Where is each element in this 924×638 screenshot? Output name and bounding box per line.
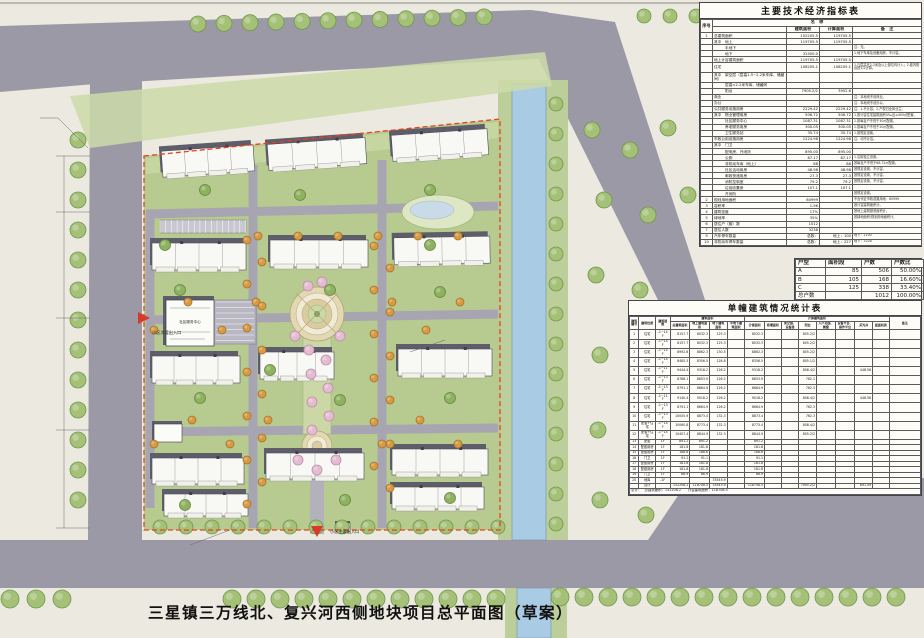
- tree-icon: [465, 520, 479, 534]
- tree-icon: [592, 347, 608, 363]
- header-cell: 面积段: [826, 260, 862, 268]
- table-cell: 住宅: [639, 376, 656, 385]
- balcony: [270, 476, 290, 481]
- tree-icon: [549, 157, 563, 171]
- residential-slab: [396, 344, 492, 378]
- tree-icon: [370, 242, 378, 250]
- table-cell: [855, 412, 873, 421]
- tree-icon: [370, 418, 378, 426]
- tree-icon: [200, 185, 211, 196]
- table-cell: 126.2: [709, 366, 727, 375]
- tree-icon: [695, 588, 713, 606]
- table-cell: 125.3: [709, 330, 727, 339]
- table-cell: -1~11F: [655, 366, 670, 375]
- table-cell: 805.2/2: [799, 430, 817, 439]
- balcony: [297, 264, 317, 269]
- tree-icon: [388, 298, 396, 306]
- tree-icon: [153, 520, 167, 534]
- table-row: 其中 架空层（层高1.5~2.2米车库、储藏间）: [701, 72, 922, 82]
- tree-icon: [231, 520, 245, 534]
- tree-icon: [445, 393, 456, 404]
- table-cell: [889, 421, 920, 430]
- table-cell: 8653.9: [690, 376, 710, 385]
- table-cell: [765, 394, 782, 403]
- tree-icon: [160, 240, 171, 251]
- table-row: 5住宅-1~11F9444.49318.2126.29318.2808.4/24…: [630, 366, 921, 375]
- tree-icon: [265, 365, 276, 376]
- table-cell: 805.2/2: [799, 339, 817, 348]
- table-cell: 9018.2: [690, 394, 710, 403]
- table-cell: [765, 366, 782, 375]
- table-cell: A: [796, 268, 826, 276]
- table-cell: 10005.9: [670, 412, 690, 421]
- tree-icon: [454, 232, 462, 240]
- tree-icon: [660, 120, 676, 136]
- table-cell: [781, 348, 799, 357]
- table-cell: 8786.1: [670, 376, 690, 385]
- tree-icon: [53, 590, 71, 608]
- tree-icon: [414, 232, 422, 240]
- table-cell: 8485.3: [670, 357, 690, 366]
- table-row: 9住宅-1~13F8791.18664.9126.28664.9762.3: [630, 403, 921, 412]
- tree-icon: [549, 337, 563, 351]
- balcony: [230, 168, 248, 174]
- tree-icon: [205, 520, 219, 534]
- table-row: 10非机动车停车数量总数：地上：227地下：3228: [701, 239, 922, 245]
- table-cell: 1012: [862, 292, 892, 300]
- tree-icon: [335, 331, 345, 341]
- tree-icon: [243, 280, 251, 288]
- building-table-footer: 总计： 总建筑面积：152208.2 计容建筑面积：118708.5: [630, 489, 921, 495]
- balcony: [273, 166, 293, 172]
- table-cell: 6: [630, 376, 639, 385]
- tree-icon: [268, 14, 284, 30]
- tree-icon: [294, 13, 310, 29]
- tree-icon: [549, 367, 563, 381]
- tree-icon: [258, 434, 266, 442]
- table-cell: [889, 385, 920, 394]
- tree-icon: [386, 308, 394, 316]
- tree-icon: [184, 298, 192, 306]
- tree-icon: [216, 15, 232, 31]
- tree-icon: [179, 520, 193, 534]
- table-cell: B: [796, 276, 826, 284]
- tree-icon: [671, 588, 689, 606]
- table-cell: [701, 63, 713, 72]
- building-table: 建筑编号 建筑性质 建筑层数 建筑面积 计算建筑面积 备注 总建筑面积 地上建筑…: [629, 316, 921, 495]
- table-cell: 住宅: [639, 366, 656, 375]
- table-cell: [816, 412, 835, 421]
- table-cell: [820, 72, 853, 82]
- balcony: [398, 261, 417, 266]
- table-cell: [727, 394, 745, 403]
- balcony: [177, 481, 195, 486]
- tree-icon: [317, 277, 327, 287]
- balcony: [225, 513, 241, 518]
- table-cell: 762.3: [799, 403, 817, 412]
- header-cell: 采光井: [855, 322, 873, 330]
- residential-slab: [390, 444, 488, 477]
- tree-icon: [70, 312, 86, 328]
- balcony: [459, 506, 477, 511]
- tree-icon: [70, 162, 86, 178]
- tree-icon: [549, 217, 563, 231]
- balcony: [441, 154, 460, 160]
- tree-icon: [257, 520, 271, 534]
- tree-icon: [175, 285, 186, 296]
- tree-icon: [304, 345, 314, 355]
- residential-slab: [150, 453, 244, 486]
- tree-icon: [424, 10, 440, 26]
- tree-icon: [323, 383, 333, 393]
- table-cell: 8873.4: [745, 412, 765, 421]
- balcony: [176, 380, 193, 385]
- tree-icon: [863, 588, 881, 606]
- table-cell: [727, 403, 745, 412]
- table-cell: [855, 421, 873, 430]
- table-row: B10516816.60%: [796, 276, 924, 284]
- tree-icon: [370, 286, 378, 294]
- tree-icon: [374, 232, 382, 240]
- table-cell: [873, 366, 890, 375]
- tree-icon: [549, 247, 563, 261]
- table-cell: 8664.9: [745, 403, 765, 412]
- table-cell: 762.3: [799, 385, 817, 394]
- tree-icon: [680, 187, 696, 203]
- table-cell: 地下：3228: [853, 239, 922, 245]
- table-cell: 33.40%: [892, 284, 924, 292]
- tree-icon: [719, 588, 737, 606]
- table-cell: -1~14F: [655, 339, 670, 348]
- balcony: [318, 163, 338, 169]
- community-center-label: 社区服务中心: [179, 319, 201, 324]
- table-cell: -1~13F: [655, 385, 670, 394]
- header-cell: 总建筑面积: [670, 322, 690, 330]
- tree-icon: [422, 326, 430, 334]
- table-cell: [727, 348, 745, 357]
- header-cell: 名 称: [713, 20, 922, 27]
- table-cell: 8: [630, 394, 639, 403]
- tree-icon: [226, 440, 234, 448]
- table-cell: -1~13F: [655, 403, 670, 412]
- table-cell: 9140.4: [670, 394, 690, 403]
- table-cell: [816, 376, 835, 385]
- tree-icon: [307, 397, 317, 407]
- tree-icon: [398, 11, 414, 27]
- table-cell: 8992.8: [670, 348, 690, 357]
- table-cell: [727, 376, 745, 385]
- residential-slab: [264, 448, 364, 481]
- tree-icon: [70, 282, 86, 298]
- balcony: [467, 373, 486, 378]
- tree-icon: [258, 258, 266, 266]
- residential-slab: [150, 351, 240, 385]
- table-cell: 8844.9: [690, 430, 710, 439]
- balcony: [168, 513, 184, 518]
- table-cell: 5: [630, 366, 639, 375]
- table-cell: [835, 394, 855, 403]
- table-cell: -1~14F: [655, 357, 670, 366]
- table-cell: 8032.3: [690, 339, 710, 348]
- balcony: [209, 170, 227, 176]
- tree-icon: [340, 495, 351, 506]
- table-cell: [873, 430, 890, 439]
- table-cell: [835, 385, 855, 394]
- table-cell: [765, 330, 782, 339]
- header-cell: 屋面机房: [873, 322, 890, 330]
- tree-icon: [491, 520, 505, 534]
- table-cell: [781, 376, 799, 385]
- table-cell: 762.1: [799, 376, 817, 385]
- table-cell: [816, 348, 835, 357]
- table-cell: [826, 292, 862, 300]
- table-cell: 8032.3: [745, 330, 765, 339]
- balcony: [216, 380, 233, 385]
- table-row: 10住宅-1~13F10005.98873.4132.38873.4762.3: [630, 412, 921, 421]
- balcony: [156, 481, 174, 486]
- table-cell: [727, 330, 745, 339]
- table-cell: -1~14F: [655, 421, 670, 430]
- site-plan-drawing: 社区服务中心: [0, 0, 924, 638]
- table-cell: [727, 339, 745, 348]
- table-cell: [889, 330, 920, 339]
- table-cell: [889, 366, 920, 375]
- table-cell: 338: [862, 284, 892, 292]
- table-cell: 8791.1: [670, 385, 690, 394]
- header-cell: 建筑层数: [655, 317, 670, 330]
- table-cell: 住宅: [639, 394, 656, 403]
- tree-icon: [307, 425, 317, 435]
- tree-icon: [303, 281, 313, 291]
- table-cell: [855, 430, 873, 439]
- table-cell: [816, 430, 835, 439]
- tech-table: 序号 名 称 建筑面积 计算面积 备 注 1总建筑面积152205.511970…: [700, 19, 922, 246]
- tree-icon: [378, 440, 386, 448]
- tree-icon: [663, 9, 677, 23]
- header-cell: 架空层、设备层: [781, 322, 799, 330]
- table-cell: 448.56: [855, 366, 873, 375]
- tree-icon: [264, 416, 272, 424]
- tree-icon: [243, 368, 251, 376]
- tree-icon: [549, 427, 563, 441]
- tree-icon: [439, 520, 453, 534]
- tree-icon: [346, 12, 362, 28]
- table-cell: 8862.3: [690, 348, 710, 357]
- table-row: 11配套+住宅-1~14F10060.88773.4132.38773.4808…: [630, 421, 921, 430]
- table-cell: 11: [630, 421, 639, 430]
- table-cell: [889, 348, 920, 357]
- header-cell: 阳台: [799, 322, 817, 330]
- table-cell: [835, 421, 855, 430]
- table-cell: 132.3: [709, 412, 727, 421]
- tree-icon: [70, 132, 86, 148]
- table-cell: 8157.7: [670, 330, 690, 339]
- table-cell: 住宅: [713, 63, 787, 72]
- header-cell: 计容面积: [745, 322, 765, 330]
- tree-icon: [70, 342, 86, 358]
- balcony: [397, 157, 416, 163]
- footer-cell: 总计： 总建筑面积：152208.2 计容建筑面积：118708.5: [630, 489, 921, 495]
- tree-icon: [243, 236, 251, 244]
- tech-table-body: 1总建筑面积152205.5119705.5其中 地上119705.511970…: [701, 33, 922, 245]
- header-cell: 地上建筑面积: [690, 322, 710, 330]
- main-entrance-label: 小区主要出入口: [330, 528, 359, 535]
- table-cell: [816, 421, 835, 430]
- table-cell: [765, 412, 782, 421]
- tree-icon: [599, 588, 617, 606]
- table-cell: [781, 430, 799, 439]
- tree-icon: [637, 9, 651, 23]
- table-cell: [853, 72, 922, 82]
- tree-icon: [258, 302, 266, 310]
- balcony: [199, 267, 218, 272]
- table-cell: 808.4/2: [799, 421, 817, 430]
- balcony: [440, 472, 459, 477]
- table-cell: 105: [826, 276, 862, 284]
- balcony: [424, 373, 443, 378]
- tree-icon: [370, 330, 378, 338]
- tree-icon: [632, 282, 648, 298]
- tree-icon: [70, 462, 86, 478]
- tree-icon: [588, 267, 604, 283]
- table-cell: 8157.7: [670, 339, 690, 348]
- table-cell: [835, 330, 855, 339]
- table-cell: 4: [630, 357, 639, 366]
- table-row: 4住宅-1~14F8485.38356.5128.88356.5805.1/2: [630, 357, 921, 366]
- table-cell: 8773.4: [690, 421, 710, 430]
- table-cell: [765, 376, 782, 385]
- table-cell: [727, 366, 745, 375]
- tree-icon: [549, 97, 563, 111]
- balcony: [219, 481, 237, 486]
- tree-icon: [549, 187, 563, 201]
- table-cell: [889, 376, 920, 385]
- table-cell: 1.凡层高在2.2米及以上部位均计入；2.套内阳台按1/2计算。: [853, 63, 922, 72]
- table-cell: [816, 357, 835, 366]
- table-cell: 住宅: [639, 339, 656, 348]
- tree-icon: [584, 122, 600, 138]
- table-cell: 配套+住宅: [639, 430, 656, 439]
- tree-icon: [218, 326, 226, 334]
- tree-icon: [425, 185, 436, 196]
- header-cell: 备 注: [853, 26, 922, 33]
- tree-icon: [180, 500, 191, 511]
- pond: [402, 195, 474, 229]
- table-cell: [889, 394, 920, 403]
- header-cell: 半地下建筑面积: [727, 322, 745, 330]
- table-row: C12533833.40%: [796, 284, 924, 292]
- tree-icon: [331, 455, 341, 465]
- tree-icon: [254, 232, 262, 240]
- table-cell: [855, 376, 873, 385]
- table-cell: 总数：: [787, 239, 820, 245]
- table-cell: 2: [630, 339, 639, 348]
- table-row: 6住宅-1~13F8786.18653.9126.28653.9762.1: [630, 376, 921, 385]
- table-cell: 125: [826, 284, 862, 292]
- balcony: [156, 267, 175, 272]
- table-cell: 1: [630, 330, 639, 339]
- tree-icon: [743, 588, 761, 606]
- table-cell: 住宅: [639, 348, 656, 357]
- table-cell: 7: [630, 385, 639, 394]
- balcony: [274, 264, 294, 269]
- balcony: [396, 506, 414, 511]
- tree-icon: [549, 307, 563, 321]
- table-cell: [781, 385, 799, 394]
- table-cell: 9318.2: [745, 366, 765, 375]
- balcony: [206, 513, 222, 518]
- tree-icon: [325, 285, 336, 296]
- table-cell: 108205.1: [787, 63, 820, 72]
- tree-icon: [450, 10, 466, 26]
- balcony: [319, 264, 339, 269]
- table-cell: [873, 330, 890, 339]
- table-cell: 非机动车停车数量: [713, 239, 787, 245]
- header-cell: 建筑性质: [639, 317, 656, 330]
- table-cell: 125.3: [709, 339, 727, 348]
- table-cell: [781, 421, 799, 430]
- table-cell: 8862.3: [745, 348, 765, 357]
- tree-icon: [638, 507, 654, 523]
- tree-icon: [549, 457, 563, 471]
- balcony: [464, 260, 483, 265]
- table-cell: -1~11F: [655, 394, 670, 403]
- table-cell: [889, 412, 920, 421]
- table-cell: 130.5: [709, 348, 727, 357]
- tree-icon: [887, 588, 905, 606]
- residential-slab: [392, 231, 491, 267]
- header-cell: 设备平台、操作平台: [835, 322, 855, 330]
- table-cell: [781, 339, 799, 348]
- table-cell: [835, 376, 855, 385]
- table-cell: -1~14F: [655, 330, 670, 339]
- tree-icon: [596, 192, 612, 208]
- tech-table-header: 序号 名 称 建筑面积 计算面积 备 注: [701, 20, 922, 33]
- building-table-title: 单幢建筑情况统计表: [629, 301, 921, 316]
- table-cell: [765, 430, 782, 439]
- tree-icon: [1, 590, 19, 608]
- table-cell: -1~14F: [655, 430, 670, 439]
- table-cell: 506: [862, 268, 892, 276]
- tree-icon: [815, 588, 833, 606]
- tree-icon: [435, 287, 446, 298]
- table-cell: [873, 421, 890, 430]
- tree-icon: [70, 402, 86, 418]
- table-cell: [873, 339, 890, 348]
- table-cell: [727, 430, 745, 439]
- tree-icon: [312, 465, 322, 475]
- table-cell: 8032.3: [690, 330, 710, 339]
- tree-icon: [321, 355, 331, 365]
- table-cell: [816, 403, 835, 412]
- table-cell: 8032.3: [745, 339, 765, 348]
- table-cell: 9318.2: [690, 366, 710, 375]
- table-cell: 总户数: [796, 292, 826, 300]
- residential-slab: [389, 124, 489, 164]
- residential-slab: [162, 489, 248, 518]
- balcony: [156, 380, 173, 385]
- table-cell: [873, 348, 890, 357]
- tree-icon: [549, 487, 563, 501]
- table-cell: 12: [630, 430, 639, 439]
- tree-icon: [791, 588, 809, 606]
- tree-icon: [622, 142, 638, 158]
- table-cell: 8664.9: [690, 385, 710, 394]
- header-cell: 入户花园、飘窗: [816, 322, 835, 330]
- table-cell: [701, 72, 713, 82]
- table-cell: 108205.1: [820, 63, 853, 72]
- header-cell: 备注: [889, 317, 920, 330]
